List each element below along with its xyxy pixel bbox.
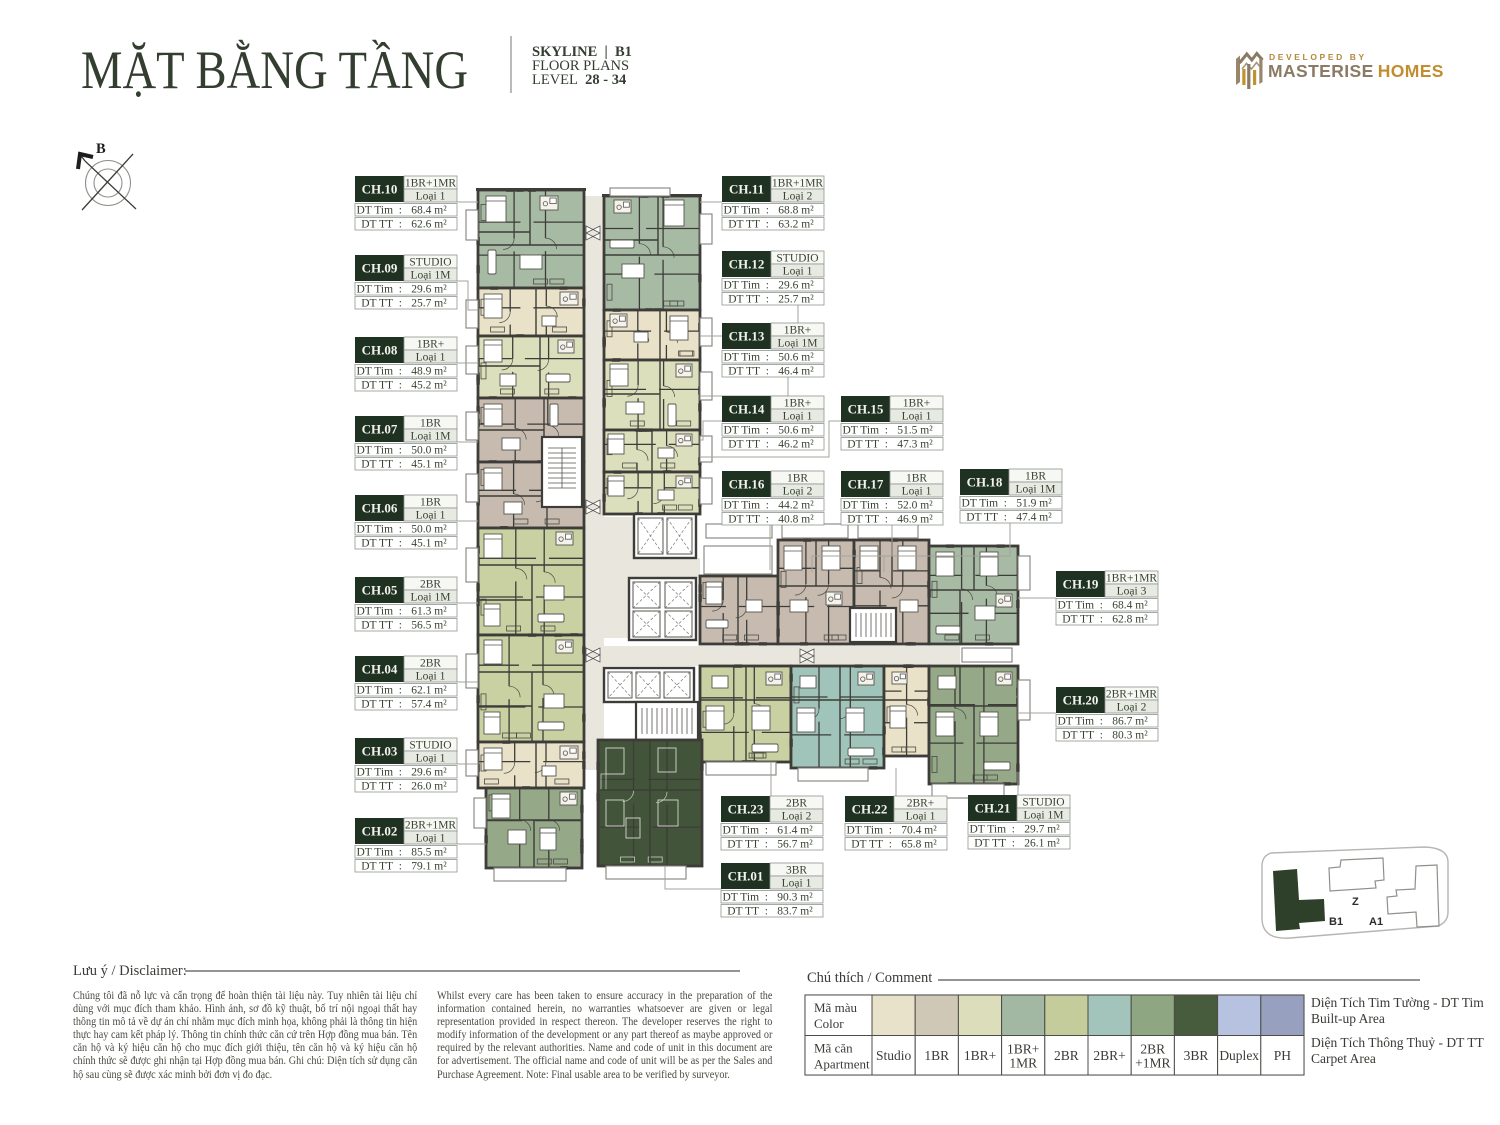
svg-text:+1MR: +1MR [1135, 1056, 1170, 1071]
svg-text:1BR: 1BR [924, 1048, 949, 1063]
svg-text:DT Tim :: DT Tim : [724, 425, 770, 437]
svg-text:CH.22: CH.22 [852, 802, 888, 817]
svg-text:85.5 m²: 85.5 m² [411, 847, 447, 859]
svg-text:Lưu ý / Disclaimer:: Lưu ý / Disclaimer: [73, 963, 187, 979]
svg-text:CH.09: CH.09 [362, 261, 398, 276]
svg-text:DT TT :: DT TT : [727, 906, 768, 918]
svg-text:B1: B1 [1329, 916, 1343, 928]
svg-text:Loại 1M: Loại 1M [778, 338, 818, 350]
svg-text:DT TT :: DT TT : [974, 838, 1015, 850]
svg-text:CH.17: CH.17 [848, 477, 884, 492]
svg-text:DT Tim :: DT Tim : [357, 606, 403, 618]
svg-text:Mã căn: Mã căn [814, 1041, 853, 1056]
svg-text:CH.16: CH.16 [729, 477, 765, 492]
svg-text:MẶT BẰNG TẦNG: MẶT BẰNG TẦNG [81, 39, 468, 100]
svg-text:DT TT :: DT TT : [966, 512, 1007, 524]
svg-text:1BR: 1BR [787, 473, 808, 485]
svg-text:DT Tim :: DT Tim : [357, 524, 403, 536]
svg-text:3BR: 3BR [786, 865, 807, 877]
svg-text:2BR+: 2BR+ [1093, 1048, 1125, 1063]
svg-text:1BR: 1BR [906, 473, 927, 485]
svg-text:DT Tim :: DT Tim : [724, 500, 770, 512]
svg-text:DT Tim :: DT Tim : [724, 280, 770, 292]
svg-text:CH.02: CH.02 [362, 824, 398, 839]
svg-text:1BR+: 1BR+ [1007, 1042, 1039, 1057]
svg-text:2BR+1MR: 2BR+1MR [405, 820, 457, 832]
svg-text:62.1 m²: 62.1 m² [411, 685, 447, 697]
svg-text:Loại 1: Loại 1 [416, 753, 446, 765]
svg-text:1BR: 1BR [420, 418, 441, 430]
svg-text:DT TT :: DT TT : [361, 219, 402, 231]
svg-text:DT TT :: DT TT : [847, 439, 888, 451]
svg-text:DT TT :: DT TT : [361, 380, 402, 392]
svg-text:DT TT :: DT TT : [361, 620, 402, 632]
svg-text:Color: Color [814, 1016, 844, 1031]
svg-text:DT Tim :: DT Tim : [357, 767, 403, 779]
svg-text:DT Tim :: DT Tim : [724, 205, 770, 217]
svg-text:61.4 m²: 61.4 m² [777, 825, 813, 837]
svg-text:MASTERISEHOMES: MASTERISEHOMES [1268, 61, 1444, 81]
svg-text:DT Tim :: DT Tim : [962, 498, 1008, 510]
svg-text:LEVEL 28 - 34: LEVEL 28 - 34 [532, 72, 626, 88]
svg-text:Diện Tích Tim Tường - DT Tim: Diện Tích Tim Tường - DT Tim [1311, 995, 1484, 1010]
svg-text:CH.13: CH.13 [729, 329, 765, 344]
svg-text:PH: PH [1274, 1048, 1292, 1063]
svg-text:DT Tim :: DT Tim : [357, 445, 403, 457]
svg-text:56.5 m²: 56.5 m² [411, 620, 447, 632]
svg-text:DT TT :: DT TT : [361, 298, 402, 310]
svg-text:68.8 m²: 68.8 m² [778, 205, 814, 217]
svg-text:Loại 1: Loại 1 [902, 486, 932, 498]
svg-text:Loại 2: Loại 2 [782, 811, 812, 823]
svg-text:40.8 m²: 40.8 m² [778, 514, 814, 526]
svg-text:63.2 m²: 63.2 m² [778, 219, 814, 231]
svg-text:50.0 m²: 50.0 m² [411, 445, 447, 457]
svg-text:1BR+: 1BR+ [903, 398, 931, 410]
svg-text:DT TT :: DT TT : [1062, 730, 1103, 742]
svg-text:STUDIO: STUDIO [409, 740, 451, 752]
svg-text:65.8 m²: 65.8 m² [901, 839, 937, 851]
svg-text:2BR: 2BR [1140, 1042, 1165, 1057]
svg-text:45.1 m²: 45.1 m² [411, 538, 447, 550]
svg-text:DT Tim :: DT Tim : [357, 685, 403, 697]
svg-text:B: B [96, 141, 106, 157]
svg-text:Loại 2: Loại 2 [1117, 702, 1147, 714]
svg-text:CH.11: CH.11 [729, 182, 764, 197]
svg-text:44.2 m²: 44.2 m² [778, 500, 814, 512]
svg-text:50.6 m²: 50.6 m² [778, 352, 814, 364]
svg-text:1MR: 1MR [1009, 1056, 1037, 1071]
svg-text:26.0 m²: 26.0 m² [411, 781, 447, 793]
svg-text:DT Tim :: DT Tim : [970, 824, 1016, 836]
svg-text:CH.15: CH.15 [848, 402, 884, 417]
svg-text:Loại 1: Loại 1 [416, 671, 446, 683]
svg-text:CH.19: CH.19 [1063, 577, 1099, 592]
svg-text:DT Tim :: DT Tim : [357, 284, 403, 296]
svg-text:26.1 m²: 26.1 m² [1024, 838, 1060, 850]
svg-text:62.8 m²: 62.8 m² [1112, 614, 1148, 626]
svg-text:CH.06: CH.06 [362, 501, 398, 516]
svg-text:STUDIO: STUDIO [409, 257, 451, 269]
svg-text:3BR: 3BR [1184, 1048, 1209, 1063]
svg-text:DT TT :: DT TT : [728, 439, 769, 451]
svg-text:50.6 m²: 50.6 m² [778, 425, 814, 437]
svg-text:Carpet Area: Carpet Area [1311, 1051, 1376, 1066]
svg-text:25.7 m²: 25.7 m² [411, 298, 447, 310]
svg-text:Studio: Studio [876, 1048, 912, 1063]
svg-text:DT Tim :: DT Tim : [724, 352, 770, 364]
svg-text:DT Tim :: DT Tim : [357, 847, 403, 859]
svg-text:DT Tim :: DT Tim : [723, 825, 769, 837]
svg-text:2BR: 2BR [420, 658, 441, 670]
svg-text:DT TT :: DT TT : [728, 219, 769, 231]
svg-text:1BR+1MR: 1BR+1MR [772, 178, 824, 190]
svg-text:DT TT :: DT TT : [361, 459, 402, 471]
svg-text:DT Tim :: DT Tim : [357, 366, 403, 378]
svg-text:Chú thích / Comment: Chú thích / Comment [807, 970, 932, 986]
svg-text:Loại 1: Loại 1 [783, 411, 813, 423]
svg-text:DT Tim :: DT Tim : [843, 500, 889, 512]
svg-text:51.5 m²: 51.5 m² [897, 425, 933, 437]
svg-text:DT TT :: DT TT : [361, 538, 402, 550]
svg-text:29.6 m²: 29.6 m² [778, 280, 814, 292]
svg-text:79.1 m²: 79.1 m² [411, 861, 447, 873]
svg-text:52.0 m²: 52.0 m² [897, 500, 933, 512]
svg-text:CH.23: CH.23 [728, 802, 764, 817]
svg-text:1BR+: 1BR+ [784, 398, 812, 410]
svg-text:Loại 2: Loại 2 [783, 191, 813, 203]
svg-text:29.7 m²: 29.7 m² [1024, 824, 1060, 836]
svg-text:DT TT :: DT TT : [361, 861, 402, 873]
svg-text:57.4 m²: 57.4 m² [411, 699, 447, 711]
svg-text:DT Tim :: DT Tim : [1058, 600, 1104, 612]
svg-text:2BR: 2BR [420, 579, 441, 591]
svg-text:DT TT :: DT TT : [361, 781, 402, 793]
svg-text:80.3 m²: 80.3 m² [1112, 730, 1148, 742]
svg-text:Loại 1: Loại 1 [416, 191, 446, 203]
svg-text:62.6 m²: 62.6 m² [411, 219, 447, 231]
svg-text:Z: Z [1352, 896, 1359, 908]
svg-text:Loại 3: Loại 3 [1117, 586, 1147, 598]
svg-text:DT TT :: DT TT : [728, 366, 769, 378]
svg-text:46.9 m²: 46.9 m² [897, 514, 933, 526]
svg-text:Loại 1: Loại 1 [906, 811, 936, 823]
svg-text:61.3 m²: 61.3 m² [411, 606, 447, 618]
svg-text:DT TT :: DT TT : [728, 294, 769, 306]
svg-text:CH.12: CH.12 [729, 257, 765, 272]
svg-text:CH.04: CH.04 [362, 662, 398, 677]
svg-text:Duplex: Duplex [1219, 1048, 1259, 1063]
svg-text:1BR+: 1BR+ [964, 1048, 996, 1063]
svg-text:CH.20: CH.20 [1063, 693, 1099, 708]
svg-text:1BR+: 1BR+ [784, 325, 812, 337]
svg-text:DT TT :: DT TT : [728, 514, 769, 526]
svg-text:Loại 1M: Loại 1M [411, 270, 451, 282]
svg-text:Loại 1: Loại 1 [416, 510, 446, 522]
svg-text:Loại 1: Loại 1 [416, 833, 446, 845]
svg-text:90.3 m²: 90.3 m² [777, 892, 813, 904]
svg-text:1BR+: 1BR+ [417, 339, 445, 351]
svg-text:Loại 1: Loại 1 [902, 411, 932, 423]
svg-text:45.2 m²: 45.2 m² [411, 380, 447, 392]
svg-text:Mã màu: Mã màu [814, 1000, 857, 1015]
svg-text:Diện Tích Thông Thuỷ - DT TT: Diện Tích Thông Thuỷ - DT TT [1311, 1035, 1484, 1050]
svg-text:46.4 m²: 46.4 m² [778, 366, 814, 378]
svg-text:70.4 m²: 70.4 m² [901, 825, 937, 837]
svg-text:DT Tim :: DT Tim : [843, 425, 889, 437]
svg-text:Built-up Area: Built-up Area [1311, 1011, 1385, 1026]
svg-text:CH.10: CH.10 [362, 182, 398, 197]
svg-text:CH.07: CH.07 [362, 422, 398, 437]
svg-text:2BR+: 2BR+ [907, 798, 935, 810]
svg-text:CH.21: CH.21 [975, 801, 1011, 816]
svg-text:86.7 m²: 86.7 m² [1112, 716, 1148, 728]
svg-text:A1: A1 [1369, 916, 1383, 928]
svg-text:CH.01: CH.01 [728, 869, 764, 884]
svg-text:CH.08: CH.08 [362, 343, 398, 358]
svg-text:2BR+1MR: 2BR+1MR [1106, 689, 1158, 701]
svg-text:DT TT :: DT TT : [361, 699, 402, 711]
svg-text:48.9 m²: 48.9 m² [411, 366, 447, 378]
svg-text:Loại 1M: Loại 1M [1016, 484, 1056, 496]
svg-text:DT Tim :: DT Tim : [847, 825, 893, 837]
svg-text:DT Tim :: DT Tim : [723, 892, 769, 904]
svg-text:STUDIO: STUDIO [1022, 797, 1064, 809]
svg-text:2BR: 2BR [786, 798, 807, 810]
svg-text:DT TT :: DT TT : [1062, 614, 1103, 626]
svg-text:68.4 m²: 68.4 m² [1112, 600, 1148, 612]
svg-text:56.7 m²: 56.7 m² [777, 839, 813, 851]
svg-text:83.7 m²: 83.7 m² [777, 906, 813, 918]
svg-text:STUDIO: STUDIO [776, 253, 818, 265]
svg-text:DT Tim :: DT Tim : [357, 205, 403, 217]
svg-text:Loại 1M: Loại 1M [411, 592, 451, 604]
svg-text:47.4 m²: 47.4 m² [1016, 512, 1052, 524]
svg-text:CH.18: CH.18 [967, 475, 1003, 490]
svg-text:DT TT :: DT TT : [727, 839, 768, 851]
svg-text:DT Tim :: DT Tim : [1058, 716, 1104, 728]
svg-text:Apartment: Apartment [814, 1057, 870, 1072]
svg-text:47.3 m²: 47.3 m² [897, 439, 933, 451]
svg-text:46.2 m²: 46.2 m² [778, 439, 814, 451]
svg-text:CH.03: CH.03 [362, 744, 398, 759]
svg-text:2BR: 2BR [1054, 1048, 1079, 1063]
svg-text:DT TT :: DT TT : [851, 839, 892, 851]
svg-text:1BR: 1BR [1025, 471, 1046, 483]
svg-text:Loại 1: Loại 1 [782, 878, 812, 890]
svg-text:DT TT :: DT TT : [847, 514, 888, 526]
svg-text:Loại 1M: Loại 1M [1024, 810, 1064, 822]
svg-text:CH.05: CH.05 [362, 583, 398, 598]
svg-text:CH.14: CH.14 [729, 402, 765, 417]
svg-text:29.6 m²: 29.6 m² [411, 767, 447, 779]
svg-text:Loại 1: Loại 1 [783, 266, 813, 278]
svg-text:45.1 m²: 45.1 m² [411, 459, 447, 471]
svg-text:29.6 m²: 29.6 m² [411, 284, 447, 296]
svg-text:1BR: 1BR [420, 497, 441, 509]
svg-text:Loại 2: Loại 2 [783, 486, 813, 498]
svg-text:Loại 1M: Loại 1M [411, 431, 451, 443]
svg-text:51.9 m²: 51.9 m² [1016, 498, 1052, 510]
svg-text:1BR+1MR: 1BR+1MR [405, 178, 457, 190]
svg-text:25.7 m²: 25.7 m² [778, 294, 814, 306]
svg-text:50.0 m²: 50.0 m² [411, 524, 447, 536]
svg-text:Loại 1: Loại 1 [416, 352, 446, 364]
svg-text:1BR+1MR: 1BR+1MR [1106, 573, 1158, 585]
svg-text:68.4 m²: 68.4 m² [411, 205, 447, 217]
